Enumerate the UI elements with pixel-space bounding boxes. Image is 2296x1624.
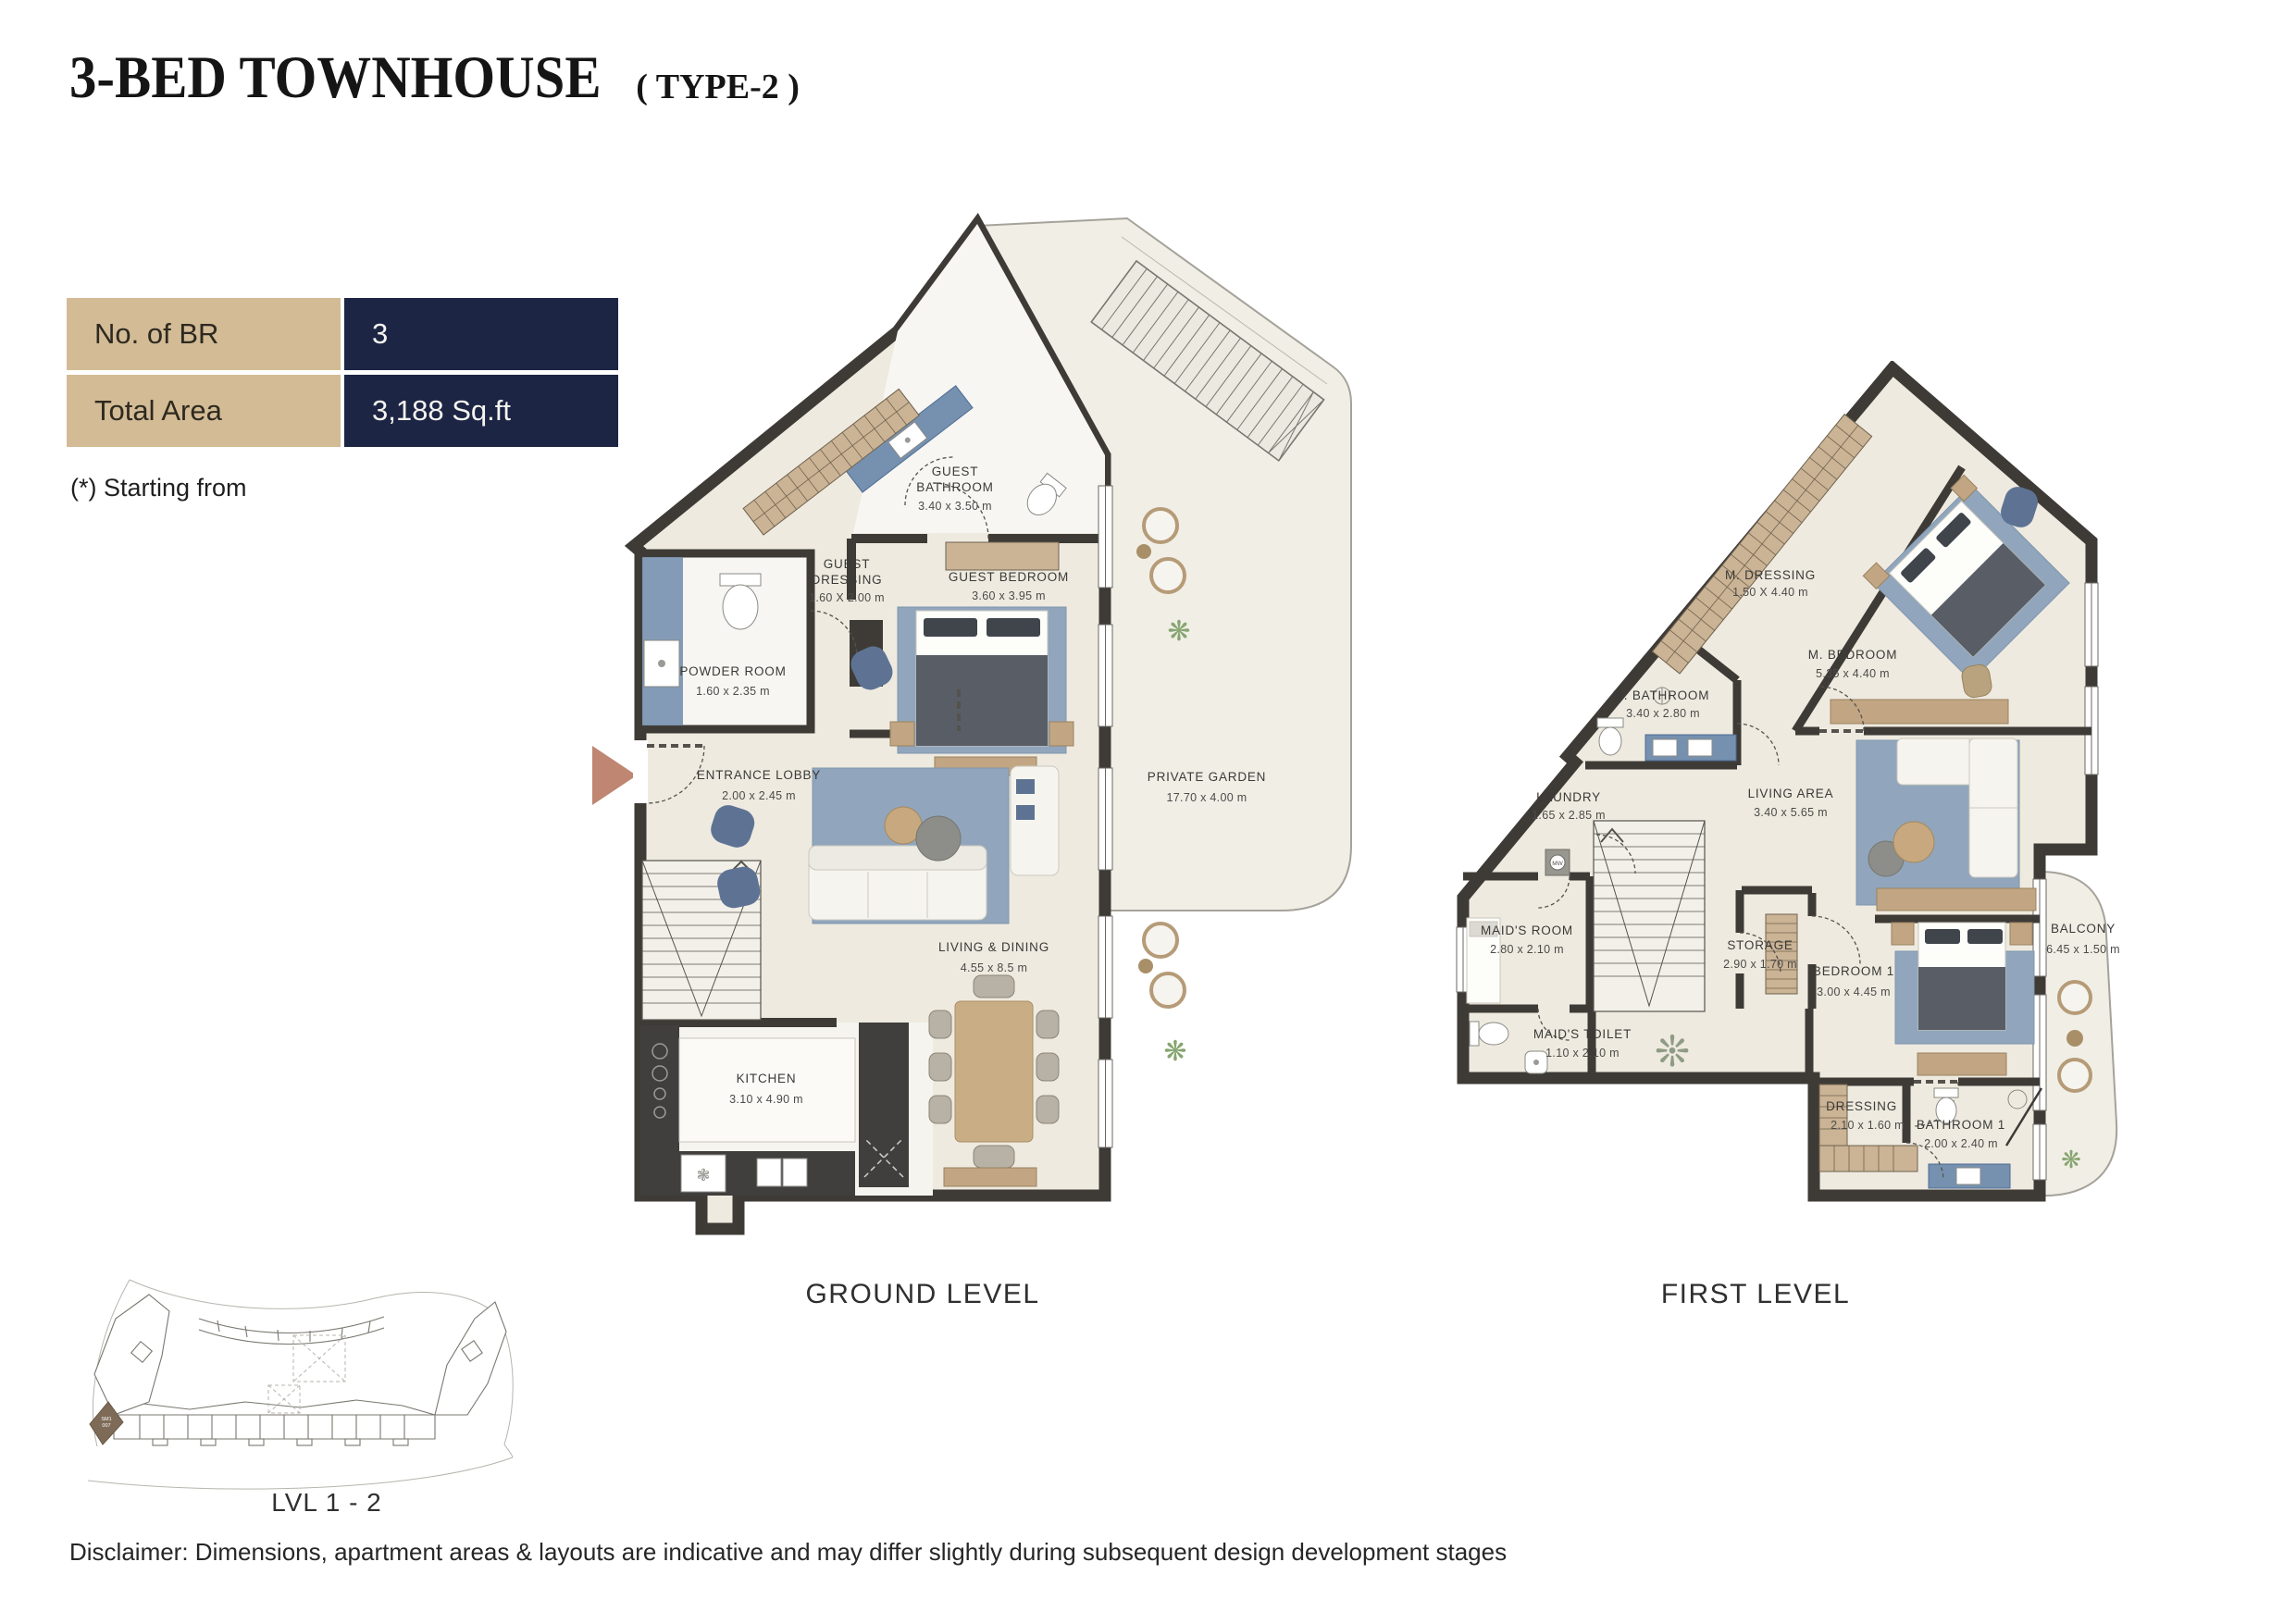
dims-balcony: 6.45 x 1.50 m [2046, 943, 2120, 956]
label-m-bedroom: M. BEDROOM [1808, 648, 1898, 662]
first-stairs [1594, 821, 1705, 1011]
dims-guest-dressing: 1.60 X 2.00 m [809, 591, 885, 604]
plant-icon: ❋ [1167, 616, 1190, 647]
sink-icon [783, 1159, 807, 1186]
palm-plant-icon: ❊ [1655, 1027, 1691, 1075]
spec-table: No. of BR 3 Total Area 3,188 Sq.ft [67, 298, 618, 447]
site-keyplan: SM1 007 [60, 1263, 523, 1494]
label-guest-bathroom: GUEST [932, 465, 979, 478]
label-maids-room: MAID'S ROOM [1481, 924, 1573, 937]
dims-guest-bedroom: 3.60 x 3.95 m [972, 589, 1046, 602]
label-balcony: BALCONY [2051, 922, 2116, 936]
label-guest-bedroom: GUEST BEDROOM [949, 570, 1069, 584]
toilet-icon [1599, 727, 1621, 755]
label-m-dressing: M. DRESSING [1725, 568, 1816, 582]
dining-table [955, 1001, 1033, 1142]
dims-bathroom1: 2.00 x 2.40 m [1924, 1137, 1998, 1150]
label-living-dining: LIVING & DINING [938, 940, 1049, 954]
dims-kitchen: 3.10 x 4.90 m [729, 1093, 803, 1106]
label-powder-room: POWDER ROOM [679, 664, 786, 678]
kitchen-counter [640, 1151, 855, 1196]
floorplan-page: 3-BED TOWNHOUSE ( TYPE-2 ) No. of BR 3 T… [0, 0, 2296, 1624]
spec-label-br: No. of BR [67, 298, 341, 370]
balcony-chair [2059, 1060, 2091, 1091]
snowflake-icon: ❃ [696, 1166, 710, 1184]
title-main: 3-BED TOWNHOUSE [69, 43, 602, 112]
courtyard-dashed [268, 1335, 345, 1413]
dims-living-area: 3.40 x 5.65 m [1754, 806, 1828, 819]
bedroom-closet [946, 542, 1059, 570]
living-area-furniture [1856, 738, 2019, 905]
plant-icon: ❋ [1163, 1036, 1186, 1067]
label-bathroom1: BATHROOM 1 [1917, 1118, 2005, 1132]
spec-value-br: 3 [344, 298, 618, 370]
spec-row-area: Total Area 3,188 Sq.ft [67, 375, 618, 447]
keyplan-level-label: LVL 1 - 2 [234, 1488, 419, 1518]
dims-guest-bathroom: 3.40 x 3.50 m [918, 500, 992, 513]
coffee-table [1893, 822, 1934, 862]
dims-m-dressing: 1.50 X 4.40 m [1732, 586, 1808, 599]
nightstand [2010, 923, 2032, 945]
toilet-icon [723, 585, 758, 629]
label-living-area: LIVING AREA [1748, 787, 1834, 800]
tv-console [1831, 700, 2008, 724]
page-title: 3-BED TOWNHOUSE ( TYPE-2 ) [69, 48, 800, 112]
nightstand [890, 722, 914, 746]
dims-maids-room: 2.80 x 2.10 m [1490, 943, 1564, 956]
dresser [1917, 1053, 2006, 1075]
dims-living-dining: 4.55 x 8.5 m [961, 961, 1027, 974]
balcony-table [2066, 1030, 2083, 1047]
nightstand [1049, 722, 1074, 746]
kitchen-island [679, 1038, 855, 1142]
title-sub: ( TYPE-2 ) [636, 67, 800, 107]
sink-icon [757, 1159, 781, 1186]
dims-storage: 2.90 x 1.70 m [1723, 958, 1797, 971]
svg-text:MW: MW [1552, 861, 1563, 867]
dims-entrance-lobby: 2.00 x 2.45 m [722, 789, 796, 802]
label-kitchen: KITCHEN [737, 1072, 797, 1085]
label-maids-toilet: MAID'S TOILET [1533, 1027, 1632, 1041]
label-guest-bathroom2: BATHROOM [916, 480, 993, 494]
balcony-chair [2059, 982, 2091, 1013]
spec-value-area: 3,188 Sq.ft [344, 375, 618, 447]
dims-m-bathroom: 3.40 x 2.80 m [1626, 707, 1700, 720]
disclaimer-text: Disclaimer: Dimensions, apartment areas … [69, 1538, 1507, 1567]
kitchen-furniture: ❃ [640, 1025, 855, 1196]
toilet-icon [1479, 1023, 1508, 1045]
svg-text:SM1: SM1 [101, 1417, 111, 1422]
coffee-table [916, 816, 961, 861]
spec-row-bedrooms: No. of BR 3 [67, 298, 618, 370]
kitchen-pantry-wall [859, 1023, 909, 1187]
first-floorplan: ❋ [1453, 361, 2184, 1258]
dims-bedroom1: 3.00 x 4.45 m [1817, 986, 1891, 998]
label-bedroom1: BEDROOM 1 [1813, 964, 1894, 978]
building-footprint [94, 1295, 506, 1445]
label-private-garden: PRIVATE GARDEN [1148, 770, 1266, 784]
tv-console [1877, 888, 2036, 911]
label-dressing1: DRESSING 1 [1826, 1099, 1909, 1113]
svg-text:007: 007 [102, 1423, 110, 1429]
nightstand [1892, 923, 1914, 945]
spec-label-area: Total Area [67, 375, 341, 447]
plant-icon: ❋ [2061, 1146, 2081, 1173]
label-storage: STORAGE [1727, 938, 1793, 952]
label-guest-dressing2: DRESSING [812, 573, 883, 587]
ground-floorplan: ❋ ❋ [620, 213, 1379, 1249]
dims-m-bedroom: 5.35 x 4.40 m [1816, 667, 1890, 680]
sideboard [944, 1168, 1036, 1186]
dims-powder-room: 1.60 x 2.35 m [696, 685, 770, 698]
label-laundry: LAUNDRY [1536, 790, 1601, 804]
ground-level-caption: GROUND LEVEL [784, 1279, 1061, 1310]
dims-laundry: 1.65 x 2.85 m [1532, 809, 1606, 822]
dims-dressing1: 2.10 x 1.60 m [1831, 1119, 1905, 1132]
dims-maids-toilet: 1.10 x 2.10 m [1545, 1047, 1620, 1060]
balcony: ❋ [2040, 872, 2116, 1196]
starting-from-note: (*) Starting from [70, 474, 247, 502]
dims-private-garden: 17.70 x 4.00 m [1167, 791, 1247, 804]
label-m-bathroom: M. BATHROOM [1613, 688, 1710, 702]
first-level-caption: FIRST LEVEL [1617, 1279, 1894, 1310]
label-entrance-lobby: ENTRANCE LOBBY [697, 768, 821, 782]
label-guest-dressing: GUEST [824, 557, 871, 571]
